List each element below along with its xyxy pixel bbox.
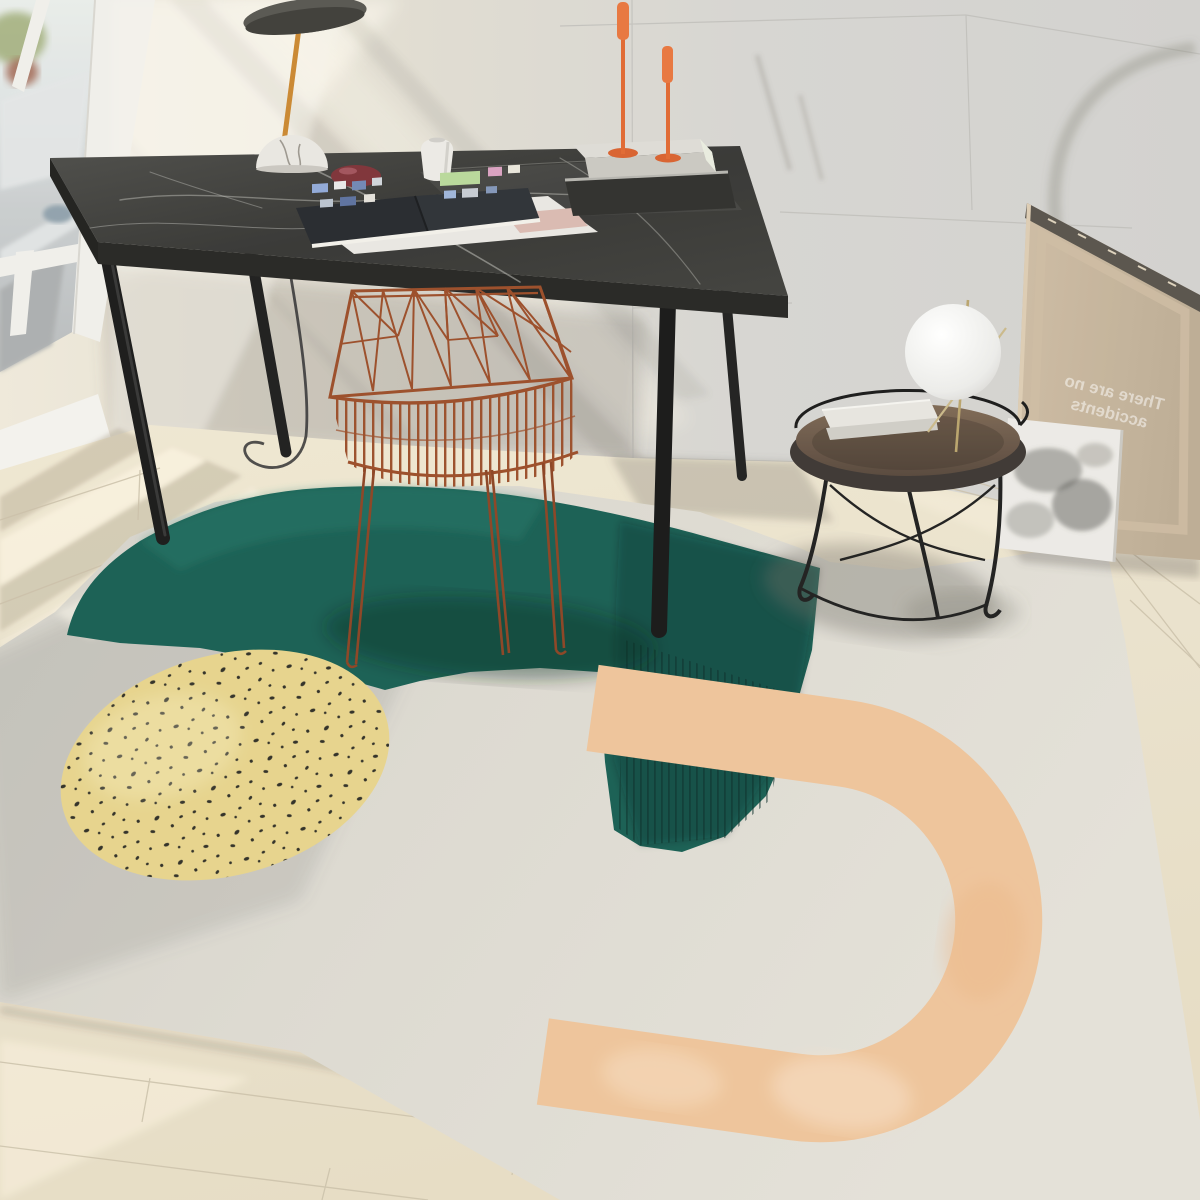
scene-photo: There are no accidents (0, 0, 1200, 1200)
product-photo: There are no accidents (0, 0, 1200, 1200)
light-wash (0, 0, 1200, 1200)
